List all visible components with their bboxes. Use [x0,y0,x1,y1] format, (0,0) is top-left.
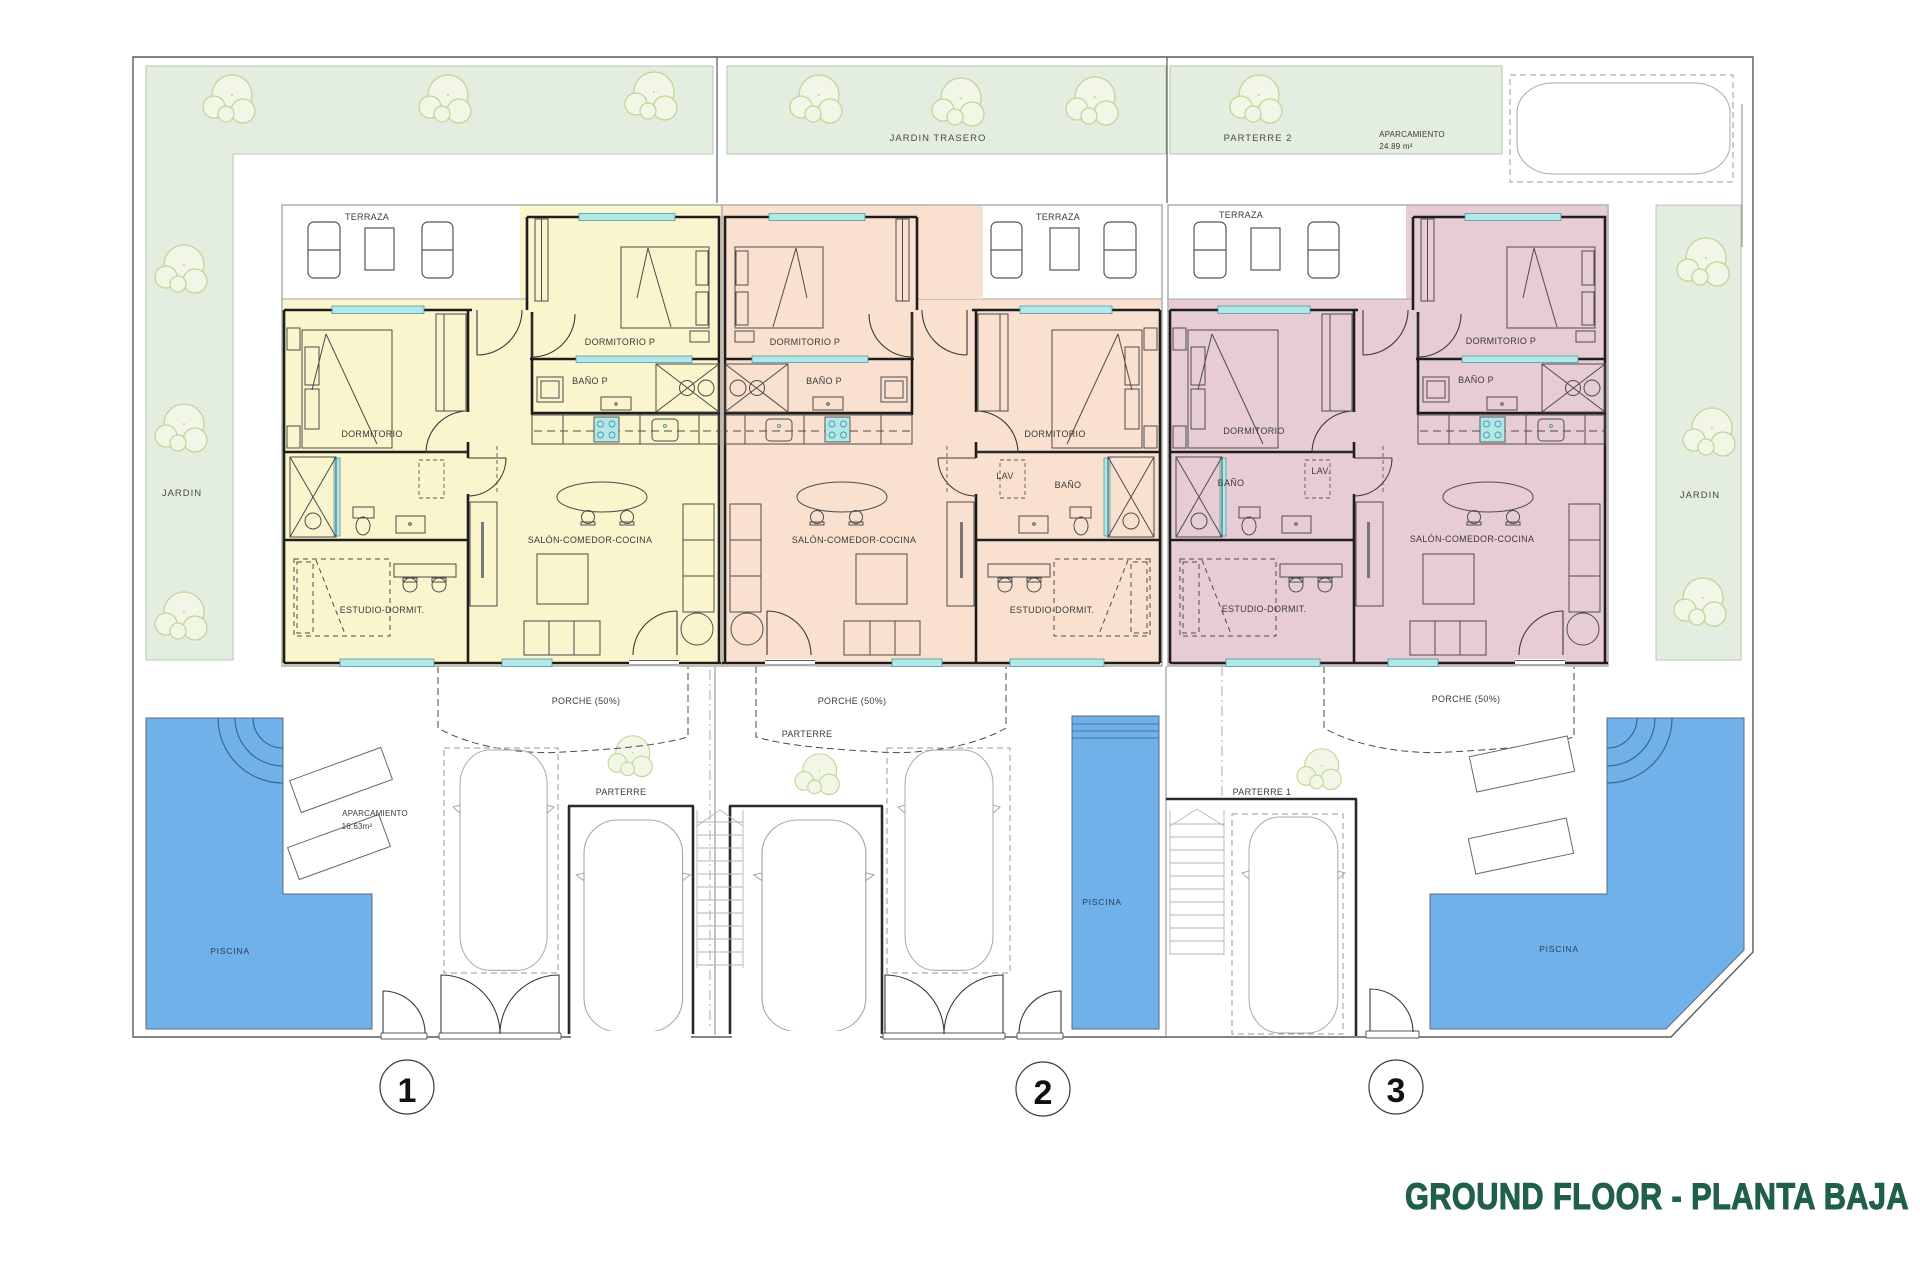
svg-text:GROUND FLOOR - PLANTA BAJA: GROUND FLOOR - PLANTA BAJA [1405,1176,1909,1217]
svg-text:TERRAZA: TERRAZA [345,212,389,222]
svg-text:BAÑO P: BAÑO P [572,376,608,386]
svg-text:1: 1 [398,1072,417,1110]
svg-text:PARTERRE 1: PARTERRE 1 [1233,787,1292,797]
svg-text:JARDIN: JARDIN [1680,490,1720,501]
svg-text:BAÑO: BAÑO [1218,478,1245,488]
svg-text:SALÓN-COMEDOR-COCINA: SALÓN-COMEDOR-COCINA [528,535,653,545]
svg-text:PISCINA: PISCINA [210,946,250,956]
svg-text:PISCINA: PISCINA [1082,897,1122,907]
svg-text:JARDIN: JARDIN [162,488,202,499]
svg-text:BAÑO: BAÑO [1055,480,1082,490]
svg-text:DORMITORIO P: DORMITORIO P [585,337,655,347]
svg-text:PORCHE (50%): PORCHE (50%) [1432,694,1501,704]
svg-text:APARCAMIENTO: APARCAMIENTO [1379,130,1445,139]
svg-text:PARTERRE 2: PARTERRE 2 [1224,133,1293,144]
svg-text:2: 2 [1034,1074,1053,1112]
svg-text:ESTUDIO-DORMIT.: ESTUDIO-DORMIT. [1222,604,1307,614]
svg-text:TERRAZA: TERRAZA [1219,210,1263,220]
svg-text:3: 3 [1387,1072,1406,1110]
svg-text:PARTERRE: PARTERRE [596,787,647,797]
svg-text:DORMITORIO P: DORMITORIO P [770,337,840,347]
svg-text:BAÑO P: BAÑO P [1458,375,1494,385]
svg-text:JARDIN TRASERO: JARDIN TRASERO [890,133,987,144]
svg-text:24.89 m²: 24.89 m² [1379,142,1412,151]
svg-text:DORMITORIO: DORMITORIO [1024,429,1085,439]
svg-text:PISCINA: PISCINA [1539,944,1579,954]
svg-text:DORMITORIO: DORMITORIO [341,429,402,439]
svg-text:LAV.: LAV. [1311,466,1330,476]
svg-text:PORCHE (50%): PORCHE (50%) [818,696,887,706]
svg-text:PARTERRE: PARTERRE [782,729,833,739]
svg-text:ESTUDIO-DORMIT.: ESTUDIO-DORMIT. [1010,605,1095,615]
svg-text:DORMITORIO P: DORMITORIO P [1466,336,1536,346]
svg-text:DORMITORIO: DORMITORIO [1223,426,1284,436]
svg-text:ESTUDIO-DORMIT.: ESTUDIO-DORMIT. [340,605,425,615]
svg-text:APARCAMIENTO: APARCAMIENTO [342,809,408,818]
svg-text:BAÑO P: BAÑO P [806,376,842,386]
svg-text:LAV: LAV [996,471,1013,481]
svg-text:SALÓN-COMEDOR-COCINA: SALÓN-COMEDOR-COCINA [792,535,917,545]
svg-text:TERRAZA: TERRAZA [1036,212,1080,222]
svg-text:PORCHE (50%): PORCHE (50%) [552,696,621,706]
svg-text:SALÓN-COMEDOR-COCINA: SALÓN-COMEDOR-COCINA [1410,534,1535,544]
svg-text:16.63m²: 16.63m² [342,822,373,831]
